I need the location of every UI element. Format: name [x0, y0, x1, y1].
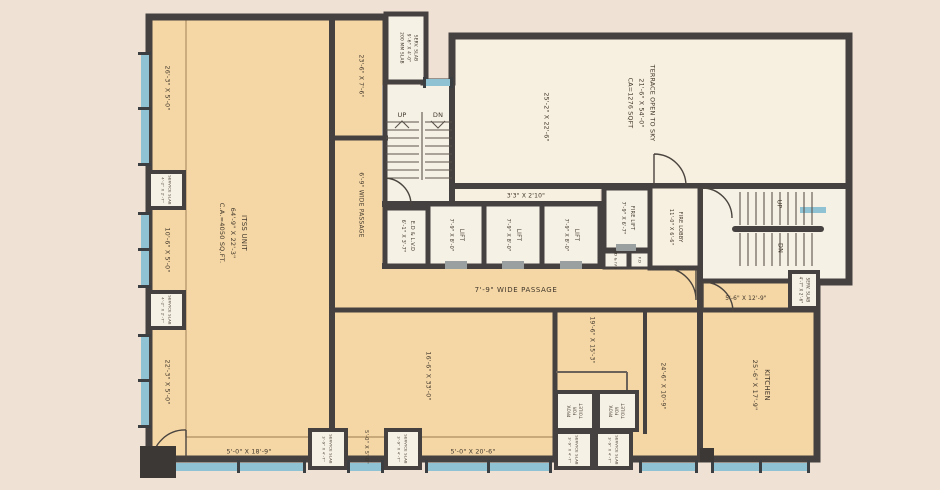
itss-unit-name: ITSS UNIT: [240, 215, 248, 251]
lift-2-name: LIFT: [515, 229, 521, 242]
kitchen-name: KITCHEN: [763, 369, 771, 401]
service-slab-bottom-box-1: [310, 430, 346, 468]
toilet-1-line3: TOILET: [579, 403, 584, 420]
serv-slab-top-name: SERV. SLAB: [413, 35, 419, 61]
toilet-1-line1: PROV.: [567, 405, 572, 418]
terrace-area-label: CA=1276 SQFT: [627, 78, 634, 129]
fd-small-label: F.D: [638, 257, 643, 263]
service-slab-left-1-name: SERVICE SLAB: [168, 175, 173, 205]
lift-2: [484, 204, 542, 266]
strip-top-right-dim: 23'-6" X 7'-6": [358, 55, 365, 98]
itss-unit-area: C.A.=4050 SQ.FT.: [218, 203, 226, 263]
lift-3-name: LIFT: [573, 229, 579, 242]
serv-slab-right-name: SERV. SLAB: [806, 278, 811, 303]
itss-unit-dim: 64'-9" X 22'-3": [229, 208, 237, 259]
left-staircase: [386, 112, 452, 180]
strip-left-top-dim: 26'-3" X 5'-0": [164, 66, 171, 111]
toilet-2-line1: PROV.: [609, 405, 614, 418]
room-16-dim: 16'-6" X 33'-0": [425, 351, 432, 400]
lift-2-door-sill: [502, 261, 524, 269]
service-slab-bottom-3-dim: 3'-9" X 4'-7": [568, 437, 573, 463]
lift-3: [542, 204, 600, 266]
service-slab-bottom-4-name: SERVICE SLAB: [615, 435, 620, 465]
floor-plan: 26'-3" X 5'-0" 10'-6" X 5'-0" 22'-3" X 5…: [0, 0, 940, 490]
room-19-dim: 19'-6" X 15'-3": [589, 317, 596, 364]
right-staircase-room: [700, 186, 849, 281]
terrace-dim: 21'-6" X 54'-0": [638, 78, 645, 127]
service-slab-left-box-2: [149, 292, 184, 328]
service-slab-bottom-box-4: [596, 432, 631, 468]
fire-lobby-dim: 11'-0" X 6'-6": [668, 209, 674, 245]
ed-ivd-small-label: ED & IVD: [614, 251, 619, 270]
lift-3-dim: 7'-9" X 8'-0": [563, 219, 569, 252]
toilet-1-line2: FOR: [573, 407, 578, 416]
stair-handrail: [732, 226, 824, 232]
toilet-2-line2: FOR: [615, 407, 620, 416]
strip-left-bottom-dim: 22'-3" X 5'-0": [164, 360, 171, 405]
fire-lift-dim: 7'-9" X 6'-7": [620, 202, 626, 235]
fire-lobby: [650, 186, 700, 268]
service-slab-left-2-dim: 4'-2" X 2'-7": [161, 297, 166, 323]
fire-lift-name: FIRE LIFT: [629, 206, 635, 231]
service-slab-bottom-3-name: SERVICE SLAB: [575, 435, 580, 465]
service-slab-left-2-name: SERVICE SLAB: [168, 295, 173, 325]
left-stair-dn-label: DN: [433, 111, 443, 119]
service-slab-bottom-box-2: [386, 430, 420, 468]
ed-lvd-dim: 6'-1" X 3'-7": [400, 220, 406, 253]
passage-horizontal-label: 7'-9" WIDE PASSAGE: [475, 286, 558, 294]
left-staircase-room: [382, 85, 455, 204]
service-slab-bottom-1-name: SERVICE SLAB: [329, 434, 334, 464]
fire-lobby-name: FIRE LOBBY: [677, 212, 683, 244]
kitchen-dim: 25'-6" X 17'-9": [751, 360, 759, 411]
lift-2-dim: 7'-9" X 8'-0": [505, 219, 511, 252]
serv-slab-right-dim: 4'-7" X 2'-6": [799, 277, 804, 304]
strip-bottom-right-dim: 5'-0" X 20'-6": [451, 449, 496, 456]
ed-lvd-name: E.D & L.V.D: [409, 221, 415, 251]
service-slab-left-box-1: [149, 172, 184, 208]
stair-side-room-dim: 5'-6" X 12'-9": [725, 296, 767, 302]
room-24-dim: 24'-6" X 10'-9": [660, 363, 667, 410]
serv-slab-top-note: 200 MM SLAB: [399, 32, 405, 64]
service-slab-bottom-box-3: [556, 432, 592, 468]
serv-slab-top-dim: 9'-6" X 4'-0": [406, 34, 412, 63]
lift-1-door-sill: [445, 261, 467, 269]
service-slab-bottom-1-dim: 3'-9" X 4'-7": [322, 436, 327, 462]
strip-left-mid-dim: 10'-6" X 5'-0": [164, 228, 171, 273]
lift-1-dim: 7'-9" X 8'-0": [448, 219, 454, 252]
right-stair-dn-label: DN: [777, 243, 784, 253]
service-slab-bottom-4-dim: 3'-9" X 4'-7": [608, 437, 613, 463]
fire-lift: [604, 188, 650, 250]
lift-1-name: LIFT: [458, 229, 464, 242]
lift-1: [428, 204, 484, 266]
service-slab-bottom-2-dim: 3'-9" X 4'-7": [397, 436, 402, 462]
terrace-name: TERRACE OPEN TO SKY: [649, 64, 656, 142]
right-stair-up-label: UP: [776, 200, 783, 209]
passage-vertical-label: 6'-9" WIDE PASSAGE: [358, 172, 365, 237]
service-slab-left-1-dim: 4'-2" X 2'-7": [161, 177, 166, 203]
toilet-2-line3: TOILET: [621, 403, 626, 420]
service-slab-bottom-2-name: SERVICE SLAB: [404, 434, 409, 464]
duct-dim: 3'3" X 2'10": [507, 193, 545, 200]
strip-bottom-left-dim: 5'-0" X 18'-9": [227, 449, 272, 456]
strip-bottom-mid-dim: 5'-0" X 5'-0": [363, 430, 369, 464]
left-stair-up-label: UP: [397, 111, 406, 119]
terrace-inner-dim: 25'-2" X 22'-6": [543, 92, 550, 141]
lift-3-door-sill: [560, 261, 582, 269]
